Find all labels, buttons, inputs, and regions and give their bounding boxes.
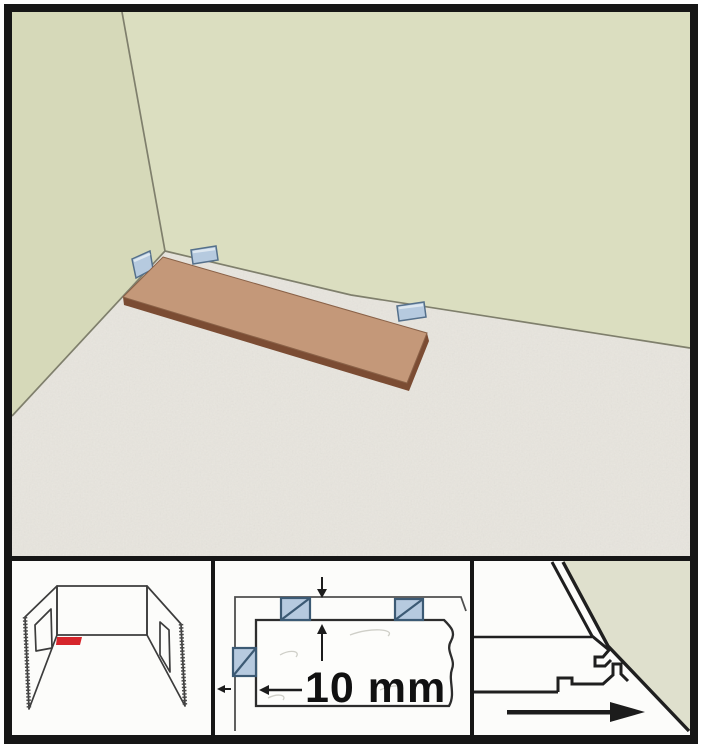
- frame-bottom: [4, 735, 698, 744]
- diagram-canvas: 10 mm: [0, 0, 702, 748]
- instruction-diagram: 10 mm: [0, 0, 702, 748]
- topview-spacer-top-right: [395, 599, 423, 620]
- divider-vertical-1: [211, 556, 215, 737]
- spacer-back-left: [191, 246, 218, 264]
- main-scene: [12, 12, 690, 556]
- frame-left: [4, 4, 12, 744]
- divider-vertical-2: [470, 556, 474, 737]
- frame-right: [690, 4, 698, 744]
- topview-spacer-left: [233, 648, 256, 676]
- divider-horizontal: [4, 556, 698, 561]
- frame-top: [4, 4, 698, 12]
- gap-measurement-label: 10 mm: [305, 664, 446, 712]
- topview-spacer-top-left: [281, 598, 310, 620]
- spacer-back-right: [397, 302, 426, 321]
- direction-arrow-shaft: [507, 710, 613, 715]
- sketch-red-start-plank: [56, 637, 82, 645]
